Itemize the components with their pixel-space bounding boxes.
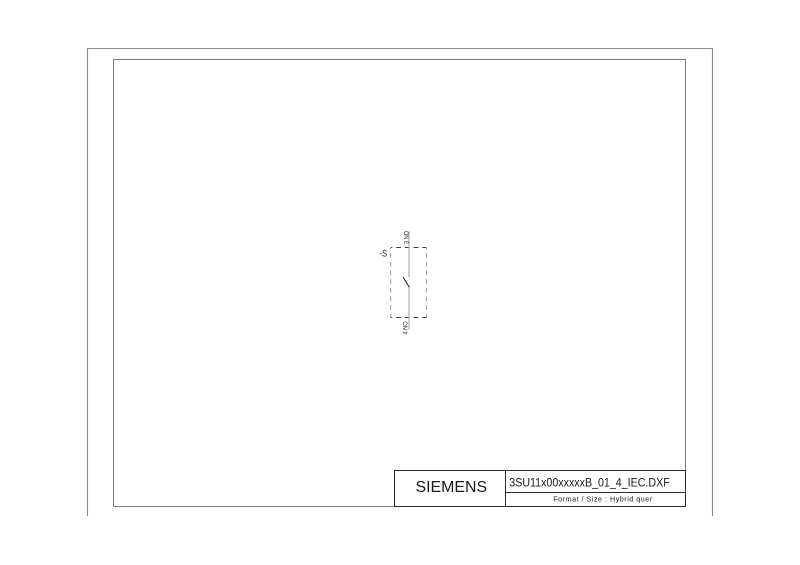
svg-text:4 NO: 4 NO — [403, 321, 410, 334]
svg-text:Format / Size : Hybrid quer: Format / Size : Hybrid quer — [553, 495, 652, 504]
svg-text:SIEMENS: SIEMENS — [416, 479, 488, 496]
svg-text:3SU11x00xxxxxB_01_4_IEC.DXF: 3SU11x00xxxxxB_01_4_IEC.DXF — [509, 477, 670, 490]
svg-text:-S: -S — [380, 249, 388, 259]
svg-text:3 NO: 3 NO — [403, 231, 410, 244]
